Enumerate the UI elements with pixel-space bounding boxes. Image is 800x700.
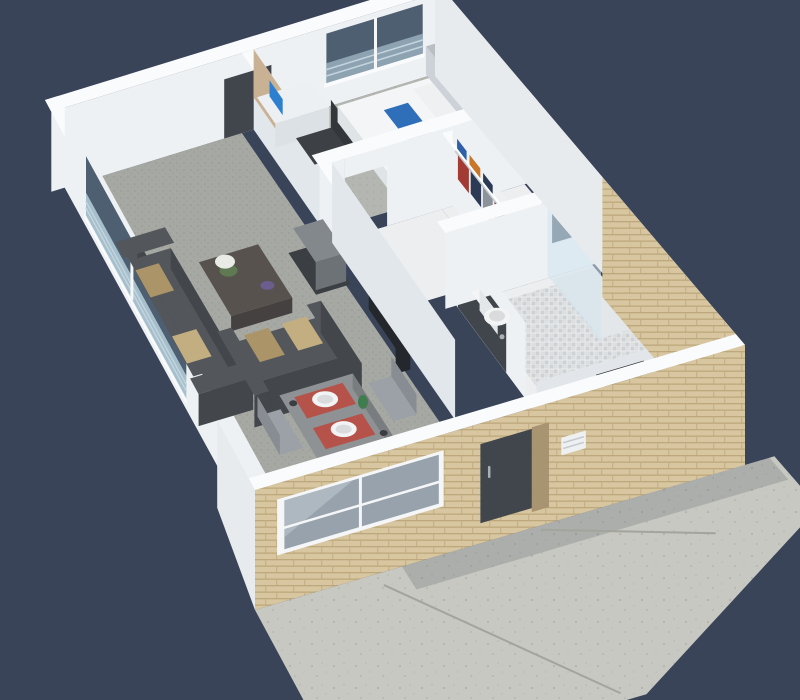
cup bbox=[380, 430, 388, 436]
plate-inner bbox=[336, 425, 352, 434]
toilet-seat bbox=[489, 310, 505, 321]
plate-inner bbox=[317, 395, 333, 404]
floorplan-render bbox=[0, 0, 800, 700]
cup bbox=[289, 400, 297, 406]
purple-dish bbox=[260, 281, 274, 290]
door-handle bbox=[500, 334, 505, 339]
entry-recess-shade bbox=[532, 422, 549, 512]
flower-bouquet bbox=[215, 255, 235, 269]
floorplan-scene-canvas bbox=[0, 0, 800, 700]
green-bottle bbox=[358, 395, 368, 409]
